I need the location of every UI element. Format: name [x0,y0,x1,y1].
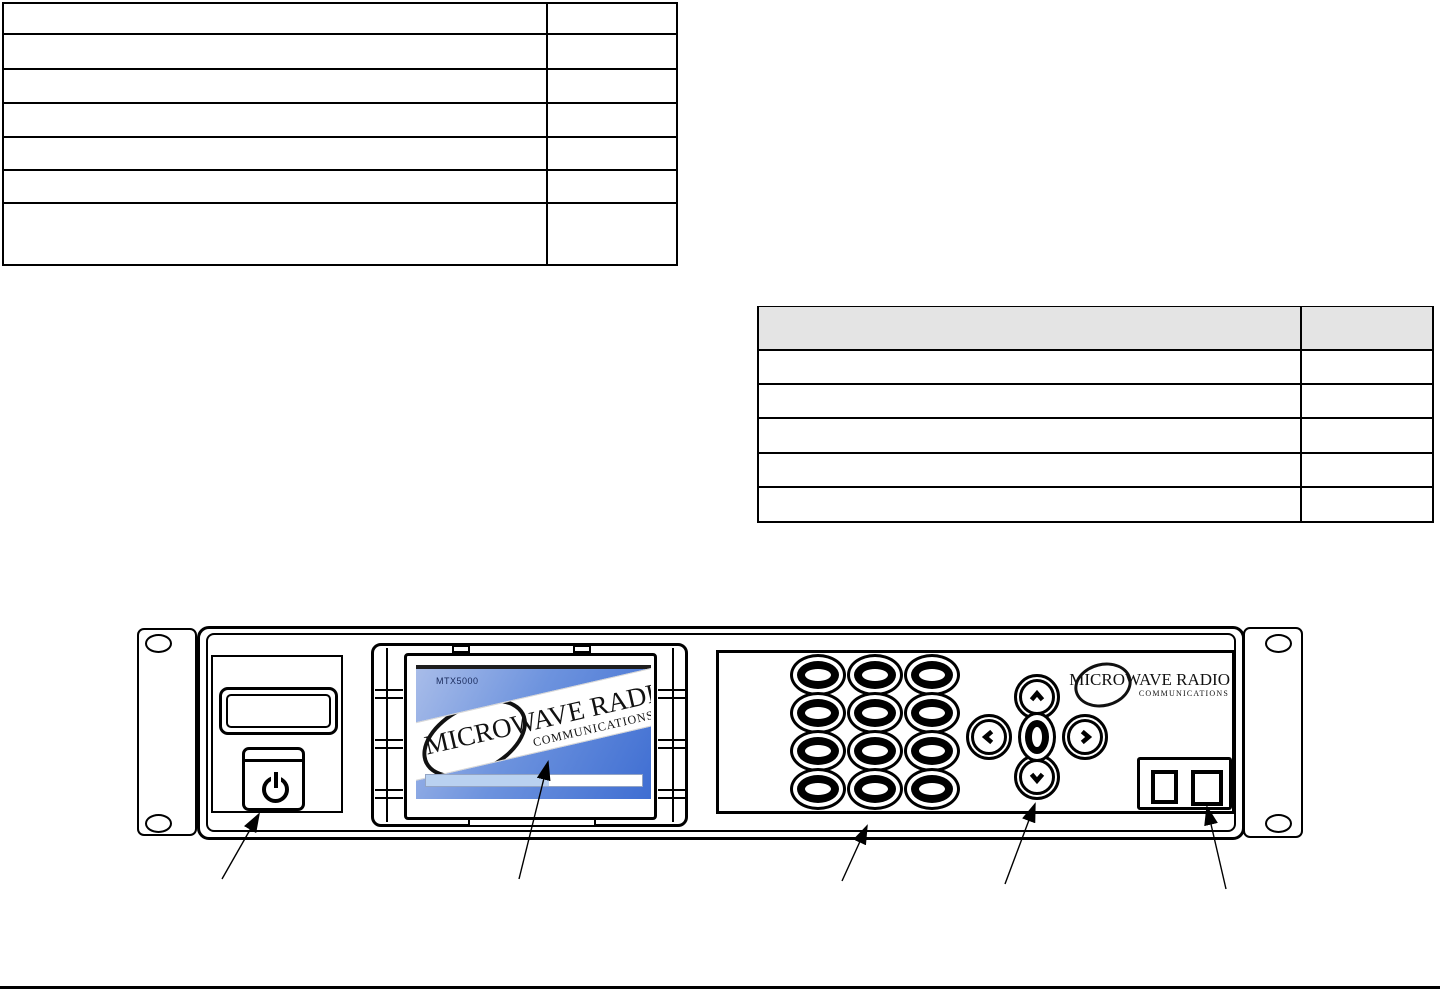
document-page: MTX5000 MICROWAVE RADIO COMMUNICATIONS [0,0,1440,991]
callout-arrow-power-button [222,814,259,879]
footer-rule [0,986,1440,989]
callout-arrow-connector [1207,807,1226,889]
callout-arrow-nav [1005,804,1035,884]
callout-arrows [0,0,1440,991]
device-front-panel-figure: MTX5000 MICROWAVE RADIO COMMUNICATIONS [0,0,1440,991]
callout-arrow-keypad [842,826,867,881]
callout-arrow-display [519,762,548,879]
